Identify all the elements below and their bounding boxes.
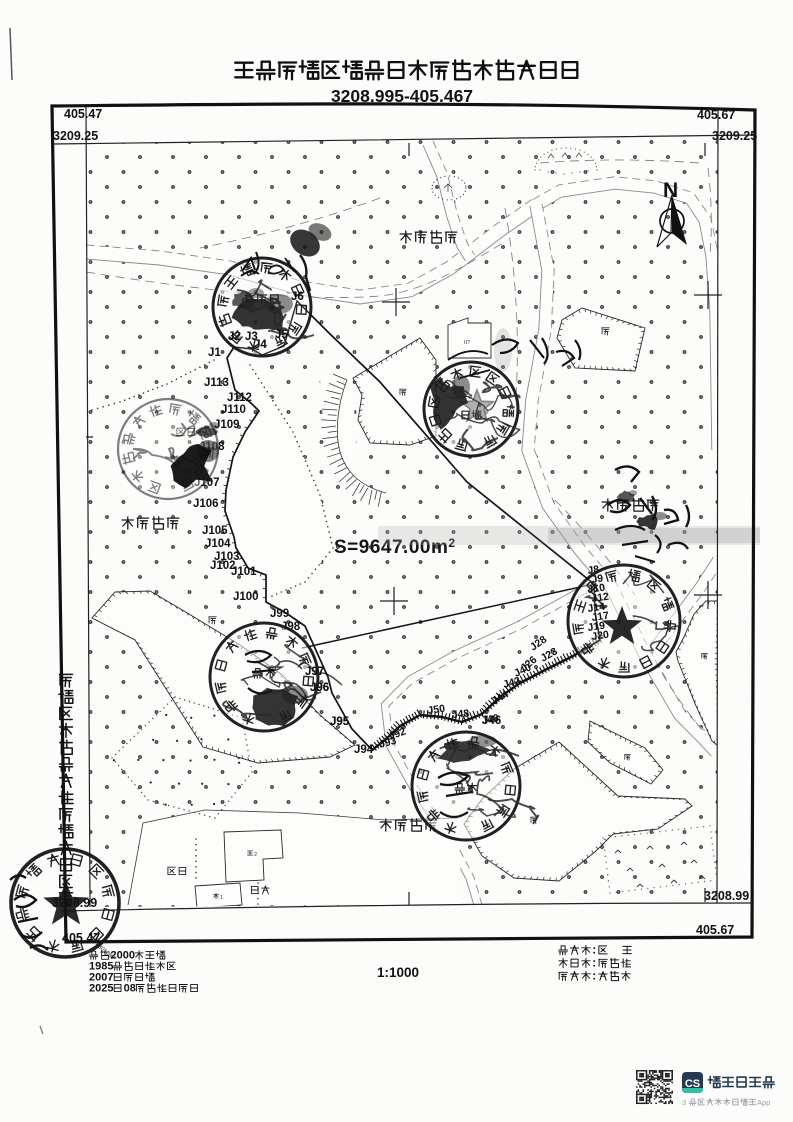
svg-text:J6: J6 xyxy=(291,291,304,303)
svg-text:II?: II? xyxy=(464,340,470,346)
svg-text:3: 3 xyxy=(682,1098,687,1107)
svg-text:J95: J95 xyxy=(330,716,350,728)
svg-text:J46: J46 xyxy=(482,715,501,727)
svg-text:J50: J50 xyxy=(427,703,446,717)
svg-text:405.67: 405.67 xyxy=(697,108,735,122)
svg-text:J20: J20 xyxy=(591,629,610,643)
svg-text::: : xyxy=(592,970,596,983)
svg-text:J113: J113 xyxy=(204,377,229,389)
svg-text:J94: J94 xyxy=(354,744,374,756)
svg-text:J101: J101 xyxy=(231,566,257,578)
svg-text:3209.25: 3209.25 xyxy=(712,129,757,143)
svg-text:J48: J48 xyxy=(451,707,470,720)
svg-text:J105: J105 xyxy=(202,525,228,537)
svg-text:App: App xyxy=(757,1098,770,1107)
svg-text:J110: J110 xyxy=(221,404,246,416)
svg-text:J106: J106 xyxy=(193,498,219,510)
svg-text:J97: J97 xyxy=(305,666,324,678)
svg-text:J104: J104 xyxy=(205,538,231,550)
svg-text:J100: J100 xyxy=(233,591,259,603)
svg-text:J5: J5 xyxy=(275,329,288,341)
svg-text:405.47: 405.47 xyxy=(64,107,102,121)
svg-text:J2: J2 xyxy=(228,331,241,343)
svg-text:08: 08 xyxy=(124,983,136,995)
svg-text:J4: J4 xyxy=(254,339,267,351)
svg-text:2025: 2025 xyxy=(89,983,113,995)
svg-text:405.67: 405.67 xyxy=(696,923,734,937)
svg-text:2000: 2000 xyxy=(111,950,135,962)
svg-text::: : xyxy=(592,957,596,970)
svg-text::: : xyxy=(592,944,596,957)
svg-text:3209.25: 3209.25 xyxy=(53,129,98,143)
svg-text:1: 1 xyxy=(220,895,223,901)
svg-text:3208.99: 3208.99 xyxy=(704,889,749,903)
svg-text:CS: CS xyxy=(685,1078,700,1090)
svg-text:1:1000: 1:1000 xyxy=(377,965,419,980)
svg-text:2: 2 xyxy=(254,852,257,858)
svg-text:J96: J96 xyxy=(310,682,329,694)
svg-text:J1: J1 xyxy=(208,347,221,359)
